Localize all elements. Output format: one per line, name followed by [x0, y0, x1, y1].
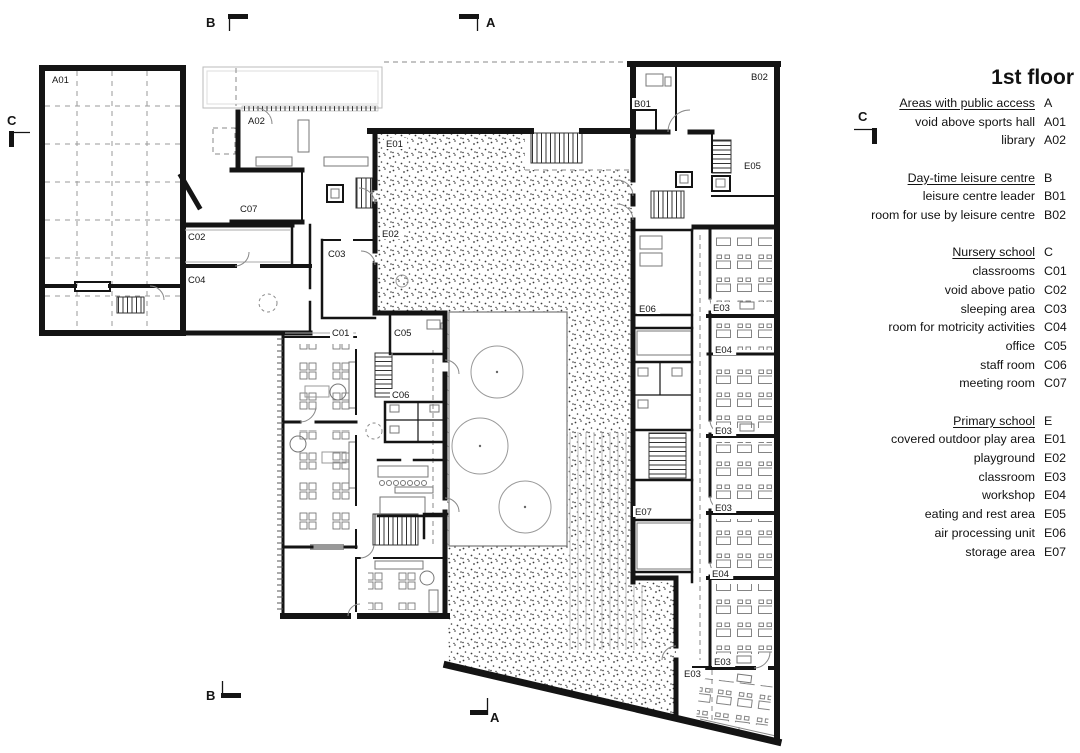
- legend-code: E04: [1044, 486, 1074, 505]
- desks: [714, 519, 772, 569]
- legend-code: B02: [1044, 206, 1074, 225]
- legend-label: room for motricity activities: [888, 318, 1035, 337]
- legend-code: C05: [1044, 337, 1074, 356]
- legend-label: staff room: [980, 356, 1035, 375]
- room-label-E03: E03: [713, 303, 730, 314]
- legend-label: eating and rest area: [925, 505, 1035, 524]
- section-marker-letter-B: B: [206, 688, 215, 703]
- legend-item: officeC05: [782, 337, 1074, 356]
- stools: [380, 481, 427, 486]
- stair-icon: [356, 178, 372, 208]
- legend-label: sleeping area: [961, 300, 1035, 319]
- bookshelf-icon: [324, 157, 368, 166]
- legend-group-C: Nursery schoolCclassroomsC01void above p…: [782, 243, 1074, 393]
- desks: [714, 584, 772, 654]
- legend-code: E06: [1044, 524, 1074, 543]
- stair-icon: [373, 514, 418, 545]
- legend-groups: Areas with public accessAvoid above spor…: [782, 94, 1074, 561]
- legend-item: storage areaE07: [782, 543, 1074, 562]
- desks: [714, 442, 772, 504]
- room-label-E03: E03: [714, 657, 731, 668]
- legend-label: storage area: [965, 543, 1035, 562]
- legend-code: C02: [1044, 281, 1074, 300]
- stair-icon: [649, 433, 686, 478]
- room-label-E03: E03: [715, 426, 732, 437]
- facade-ticks: [277, 338, 283, 612]
- legend-item: void above sports hallA01: [782, 113, 1074, 132]
- legend-code: E07: [1044, 543, 1074, 562]
- toilet-stalls: [637, 331, 691, 355]
- legend-item: playgroundE02: [782, 449, 1074, 468]
- legend-code: A01: [1044, 113, 1074, 132]
- room-label-A01: A01: [52, 75, 69, 86]
- legend: 1st floor Areas with public accessAvoid …: [782, 66, 1074, 580]
- section-marker-letter-A: A: [486, 15, 496, 30]
- room-label-C07: C07: [240, 204, 257, 215]
- legend-item: staff roomC06: [782, 356, 1074, 375]
- legend-code: C: [1044, 243, 1074, 262]
- legend-code: C04: [1044, 318, 1074, 337]
- section-marker-bar: [459, 14, 479, 19]
- legend-group-header: Day-time leisure centreB: [782, 169, 1074, 188]
- room-label-C01: C01: [332, 328, 349, 339]
- legend-code: E03: [1044, 468, 1074, 487]
- legend-item: covered outdoor play areaE01: [782, 430, 1074, 449]
- fixture-icon: [390, 405, 399, 412]
- legend-item: leisure centre leaderB01: [782, 187, 1074, 206]
- room-label-C02: C02: [188, 232, 205, 243]
- legend-item: eating and rest areaE05: [782, 505, 1074, 524]
- nursery-tables: [289, 344, 351, 416]
- air-unit-icon: [640, 253, 662, 266]
- legend-code: C07: [1044, 374, 1074, 393]
- room-label-C05: C05: [394, 328, 411, 339]
- legend-label: library: [1001, 131, 1035, 150]
- legend-item: workshopE04: [782, 486, 1074, 505]
- sliding-door: [310, 544, 344, 550]
- page-title: 1st floor: [782, 66, 1074, 90]
- legend-label: meeting room: [959, 374, 1035, 393]
- stair-icon: [651, 191, 684, 218]
- legend-code: B: [1044, 169, 1074, 188]
- room-label-E04: E04: [715, 345, 732, 356]
- teacher-desk-icon: [740, 302, 754, 309]
- room-label-C03: C03: [328, 249, 345, 260]
- legend-label: void above sports hall: [915, 113, 1035, 132]
- legend-code: E01: [1044, 430, 1074, 449]
- legend-group-B: Day-time leisure centreBleisure centre l…: [782, 169, 1074, 225]
- fixture-icon: [638, 368, 648, 376]
- legend-label: void above patio: [945, 281, 1035, 300]
- room-label-E01: E01: [386, 139, 403, 150]
- desks: [714, 236, 772, 302]
- room-label-C04: C04: [188, 275, 205, 286]
- section-marker-letter-B: B: [206, 15, 215, 30]
- legend-group-header: Nursery schoolC: [782, 243, 1074, 262]
- legend-code: E05: [1044, 505, 1074, 524]
- legend-item: sleeping areaC03: [782, 300, 1074, 319]
- legend-item: room for motricity activitiesC04: [782, 318, 1074, 337]
- room-label-E05: E05: [744, 161, 761, 172]
- legend-code: C03: [1044, 300, 1074, 319]
- room-label-E04: E04: [712, 569, 729, 580]
- legend-item: air processing unitE06: [782, 524, 1074, 543]
- tree-court: [396, 275, 567, 546]
- legend-code: C01: [1044, 262, 1074, 281]
- legend-label: office: [1006, 337, 1035, 356]
- legend-item: meeting roomC07: [782, 374, 1074, 393]
- legend-code: B01: [1044, 187, 1074, 206]
- stair-icon: [117, 297, 144, 313]
- bookshelf-icon: [256, 157, 292, 166]
- counter-icon: [375, 561, 423, 569]
- stair-icon: [531, 133, 582, 163]
- section-marker-bar: [221, 693, 241, 698]
- elevator-icon: [712, 176, 730, 191]
- legend-group-header: Primary schoolE: [782, 412, 1074, 431]
- legend-label: Day-time leisure centre: [908, 169, 1035, 188]
- fixture-icon: [430, 405, 439, 412]
- legend-item: libraryA02: [782, 131, 1074, 150]
- toilet-stalls: [637, 523, 691, 569]
- glazed-wall: [242, 106, 378, 111]
- legend-group-E: Primary schoolEcovered outdoor play area…: [782, 412, 1074, 562]
- teacher-desk-icon: [737, 656, 751, 663]
- legend-label: Areas with public access: [899, 94, 1035, 113]
- legend-label: playground: [974, 449, 1035, 468]
- room-label-A02: A02: [248, 116, 265, 127]
- air-unit-icon: [640, 236, 662, 249]
- legend-item: classroomsC01: [782, 262, 1074, 281]
- legend-label: classroom: [979, 468, 1035, 487]
- legend-label: covered outdoor play area: [891, 430, 1035, 449]
- fixture-icon: [672, 368, 682, 376]
- section-marker-bar: [470, 710, 488, 715]
- room-label-E03: E03: [715, 503, 732, 514]
- section-marker-bar: [228, 14, 248, 19]
- stair-icon: [712, 140, 731, 173]
- legend-code: E: [1044, 412, 1074, 431]
- room-label-E07: E07: [635, 507, 652, 518]
- section-marker-bar: [9, 131, 14, 147]
- floor-plan-page: A01A02C07C02C03C04C01C05C06E01E02B01B02E…: [0, 0, 1080, 753]
- office-desk-icon: [646, 74, 671, 86]
- legend-label: room for use by leisure centre: [871, 206, 1035, 225]
- room-label-B01: B01: [634, 99, 651, 110]
- legend-label: air processing unit: [934, 524, 1035, 543]
- room-label-B02: B02: [751, 72, 768, 83]
- desks: [714, 362, 772, 428]
- desks-angled: [696, 670, 773, 726]
- legend-group-header: Areas with public accessA: [782, 94, 1074, 113]
- room-label-C06: C06: [392, 390, 409, 401]
- fixture-icon: [390, 426, 399, 433]
- legend-item: void above patioC02: [782, 281, 1074, 300]
- nursery-tables: [289, 430, 351, 540]
- legend-group-A: Areas with public accessAvoid above spor…: [782, 94, 1074, 150]
- bookshelf-icon: [298, 120, 309, 152]
- legend-label: workshop: [982, 486, 1035, 505]
- room-label-E02: E02: [382, 229, 399, 240]
- room-label-E06: E06: [639, 304, 656, 315]
- elevator-icon: [676, 172, 692, 187]
- legend-item: room for use by leisure centreB02: [782, 206, 1074, 225]
- shelf-icon: [429, 590, 438, 612]
- nursery-tables: [368, 570, 424, 610]
- legend-item: classroomE03: [782, 468, 1074, 487]
- legend-code: C06: [1044, 356, 1074, 375]
- legend-code: A02: [1044, 131, 1074, 150]
- counter-icon: [378, 466, 428, 477]
- fixture-icon: [638, 400, 648, 408]
- legend-label: leisure centre leader: [923, 187, 1035, 206]
- legend-label: Primary school: [953, 412, 1035, 431]
- legend-code: A: [1044, 94, 1074, 113]
- legend-label: Nursery school: [952, 243, 1035, 262]
- section-marker-letter-A: A: [490, 710, 500, 725]
- legend-code: E02: [1044, 449, 1074, 468]
- room-label-E03: E03: [684, 669, 701, 680]
- shelf-icon: [395, 487, 433, 493]
- toilet-stalls: [380, 497, 425, 515]
- elevator-icon: [327, 185, 343, 202]
- wall-notch: [75, 282, 110, 291]
- stair-icon: [375, 353, 392, 397]
- section-marker-letter-C: C: [7, 113, 17, 128]
- legend-label: classrooms: [972, 262, 1035, 281]
